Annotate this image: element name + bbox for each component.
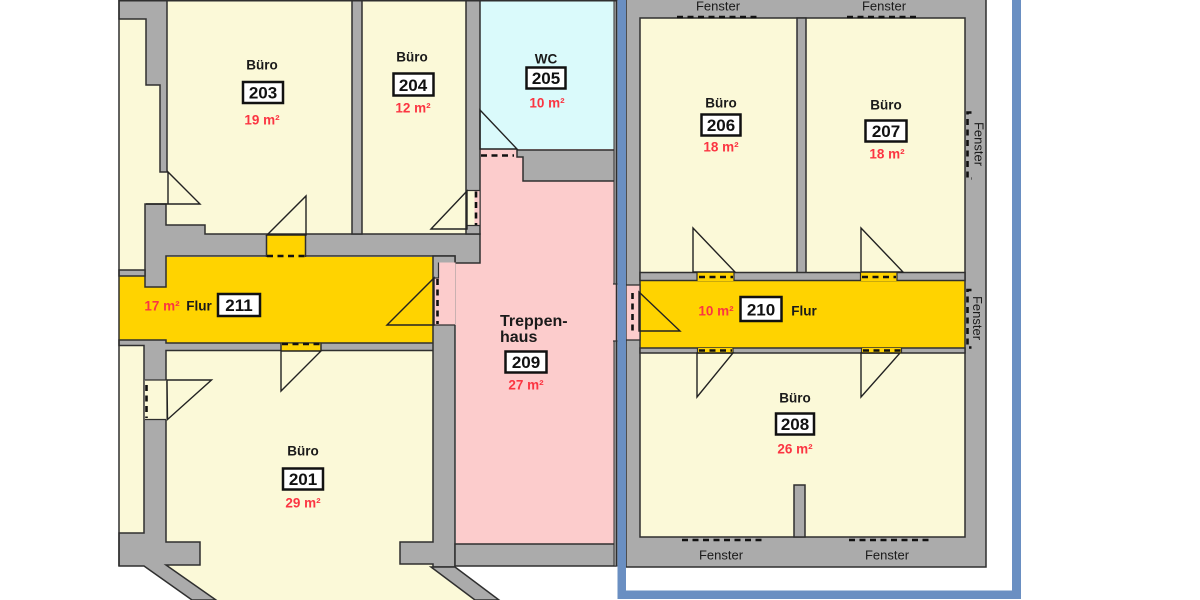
svg-text:Fenster: Fenster	[696, 0, 741, 14]
svg-text:201: 201	[289, 470, 317, 489]
svg-text:Büro: Büro	[870, 98, 902, 113]
svg-text:10 m²: 10 m²	[698, 304, 734, 319]
svg-text:204: 204	[399, 76, 428, 95]
svg-text:27 m²: 27 m²	[508, 378, 544, 393]
svg-text:18 m²: 18 m²	[869, 147, 905, 162]
svg-text:10 m²: 10 m²	[529, 96, 565, 111]
svg-text:haus: haus	[500, 329, 537, 346]
svg-text:WC: WC	[535, 52, 558, 67]
svg-text:Fenster: Fenster	[862, 0, 907, 14]
svg-text:210: 210	[747, 301, 775, 320]
svg-text:Flur: Flur	[186, 299, 212, 314]
svg-text:Fenster: Fenster	[865, 548, 910, 563]
svg-text:208: 208	[781, 415, 809, 434]
svg-text:Büro: Büro	[287, 444, 319, 459]
svg-text:Treppen-: Treppen-	[500, 313, 568, 330]
svg-text:209: 209	[512, 353, 540, 372]
svg-text:Büro: Büro	[705, 96, 737, 111]
svg-text:29 m²: 29 m²	[285, 496, 321, 511]
svg-text:19 m²: 19 m²	[244, 113, 280, 128]
svg-text:26 m²: 26 m²	[777, 442, 813, 457]
svg-text:Fenster: Fenster	[699, 548, 744, 563]
svg-text:203: 203	[249, 84, 277, 103]
svg-text:206: 206	[707, 116, 735, 135]
svg-text:17 m²: 17 m²	[144, 299, 180, 314]
svg-text:Büro: Büro	[246, 58, 278, 73]
svg-text:Büro: Büro	[396, 50, 428, 65]
svg-text:Büro: Büro	[779, 391, 811, 406]
svg-text:207: 207	[872, 122, 900, 141]
svg-text:Fenster: Fenster	[970, 296, 985, 341]
svg-text:Flur: Flur	[791, 304, 817, 319]
svg-text:205: 205	[532, 69, 560, 88]
svg-text:Fenster: Fenster	[972, 122, 987, 167]
svg-text:211: 211	[225, 296, 252, 315]
svg-text:18 m²: 18 m²	[703, 140, 739, 155]
svg-text:12 m²: 12 m²	[395, 101, 431, 116]
